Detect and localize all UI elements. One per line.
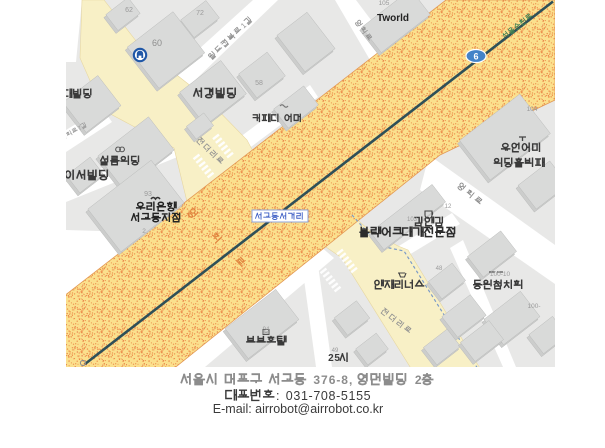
svg-text:104: 104	[527, 106, 538, 113]
svg-text:60: 60	[152, 38, 162, 48]
svg-text:62: 62	[125, 7, 133, 14]
svg-text::: :	[276, 389, 279, 403]
svg-text:94: 94	[263, 327, 270, 333]
svg-text:Tworld: Tworld	[377, 13, 409, 24]
svg-text:48: 48	[436, 266, 443, 272]
svg-text:100-: 100-	[527, 303, 540, 310]
svg-text:58: 58	[255, 80, 263, 87]
svg-text:100-10: 100-10	[490, 271, 511, 278]
svg-text:12: 12	[445, 204, 452, 210]
svg-text:031-708-5155: 031-708-5155	[286, 389, 371, 403]
svg-text:103: 103	[407, 217, 418, 223]
svg-text:25: 25	[328, 353, 340, 364]
svg-text:2: 2	[415, 373, 422, 387]
svg-text:2: 2	[142, 228, 146, 235]
svg-text:E-mail: airrobot@airrobot.co.k: E-mail: airrobot@airrobot.co.kr	[213, 402, 383, 416]
svg-text:49: 49	[332, 348, 339, 354]
svg-text:376-8,: 376-8,	[313, 373, 352, 387]
svg-text:72: 72	[196, 10, 204, 17]
svg-text:93: 93	[144, 191, 152, 198]
svg-text:105: 105	[379, 0, 390, 7]
svg-text:6: 6	[473, 52, 478, 62]
